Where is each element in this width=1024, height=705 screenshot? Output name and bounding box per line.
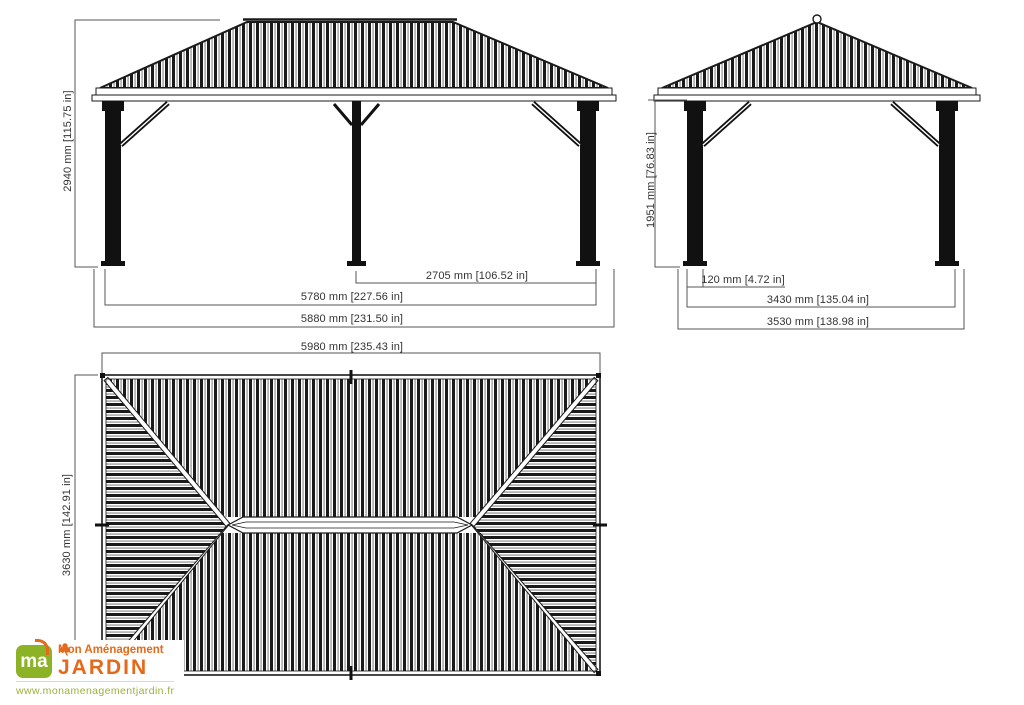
plan-depth-dimension: 3630 mm [142.91 in] [61, 474, 73, 576]
front-height-dimension: 2940 mm [115.75 in] [62, 90, 74, 191]
roof-plan-drawing [60, 340, 620, 690]
front-bay-dimension: 2705 mm [106.52 in] [426, 270, 528, 282]
front-span-dimension: 5780 mm [227.56 in] [301, 291, 403, 303]
clover-icon [58, 643, 72, 657]
leaf-accent-icon [35, 639, 49, 655]
plan-width-dimension: 5980 mm [235.43 in] [301, 341, 403, 353]
front-elevation-drawing [60, 5, 620, 340]
side-span-dimension: 3430 mm [135.04 in] [767, 294, 869, 306]
front-overall-dimension: 5880 mm [231.50 in] [301, 313, 403, 325]
brand-line1: Mon Aménagement [58, 644, 164, 656]
gazebo-dimension-drawing: 2940 mm [115.75 in] 2705 mm [106.52 in] … [0, 0, 1024, 705]
side-height-dimension: 1951 mm [76.83 in] [645, 132, 657, 228]
brand-monogram: ma [16, 645, 52, 678]
brand-line2: JARDIN [58, 657, 164, 678]
side-elevation-drawing [640, 5, 1024, 340]
side-post-width-dimension: 120 mm [4.72 in] [701, 274, 785, 286]
brand-logo: ma Mon Aménagement JARDIN www.monamenage… [10, 640, 184, 699]
side-overall-dimension: 3530 mm [138.98 in] [767, 316, 869, 328]
brand-website: www.monamenagementjardin.fr [16, 681, 174, 697]
